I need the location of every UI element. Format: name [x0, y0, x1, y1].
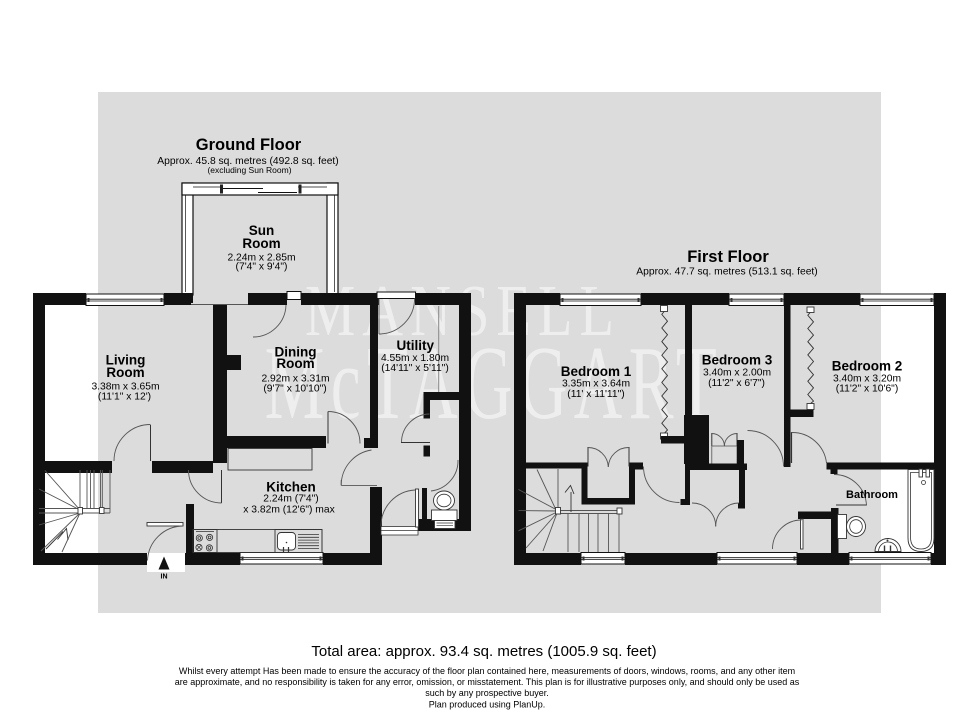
- svg-text:Room: Room: [242, 236, 280, 251]
- svg-text:(11' x 11'11"): (11' x 11'11"): [567, 389, 624, 400]
- svg-text:Bedroom 1: Bedroom 1: [561, 364, 632, 379]
- svg-text:(11'2" x 10'6"): (11'2" x 10'6"): [836, 384, 899, 395]
- svg-text:Approx. 47.7 sq. metres (513.1: Approx. 47.7 sq. metres (513.1 sq. feet): [636, 267, 817, 278]
- svg-text:such by any prospective buyer.: such by any prospective buyer.: [425, 688, 549, 698]
- svg-text:(14'11" x 5'11"): (14'11" x 5'11"): [381, 363, 449, 374]
- svg-text:3.35m x 3.64m: 3.35m x 3.64m: [562, 378, 630, 389]
- svg-text:Kitchen: Kitchen: [266, 480, 316, 495]
- svg-text:Ground Floor: Ground Floor: [196, 136, 302, 154]
- svg-text:Bathroom: Bathroom: [846, 489, 898, 501]
- svg-text:Bedroom 3: Bedroom 3: [702, 352, 773, 367]
- svg-text:x 3.82m (12'6") max: x 3.82m (12'6") max: [243, 505, 335, 516]
- svg-text:McTAGGART: McTAGGART: [265, 325, 724, 442]
- svg-text:(9'7" x 10'10"): (9'7" x 10'10"): [263, 383, 326, 394]
- svg-text:Utility: Utility: [397, 338, 435, 353]
- svg-text:Bedroom 2: Bedroom 2: [832, 358, 903, 373]
- svg-text:IN: IN: [161, 574, 168, 581]
- svg-text:(7'4" x 9'4"): (7'4" x 9'4"): [236, 262, 288, 273]
- svg-text:Room: Room: [106, 365, 144, 380]
- svg-text:Plan produced using PlanUp.: Plan produced using PlanUp.: [429, 699, 546, 709]
- svg-text:Room: Room: [276, 356, 314, 371]
- svg-text:(11'2" x 6'7"): (11'2" x 6'7"): [708, 378, 765, 389]
- svg-text:are approximate, and no respon: are approximate, and no responsibility i…: [175, 677, 800, 687]
- svg-text:First Floor: First Floor: [687, 248, 769, 266]
- svg-text:(11'1" x 12'): (11'1" x 12'): [98, 391, 151, 402]
- svg-text:2.24m (7'4"): 2.24m (7'4"): [263, 494, 318, 505]
- svg-text:(excluding Sun Room): (excluding Sun Room): [207, 165, 291, 175]
- svg-text:Total area: approx. 93.4 sq. m: Total area: approx. 93.4 sq. metres (100…: [311, 643, 656, 660]
- svg-text:4.55m x 1.80m: 4.55m x 1.80m: [381, 353, 449, 364]
- svg-text:Whilst every attempt Has been: Whilst every attempt Has been made to en…: [179, 666, 795, 676]
